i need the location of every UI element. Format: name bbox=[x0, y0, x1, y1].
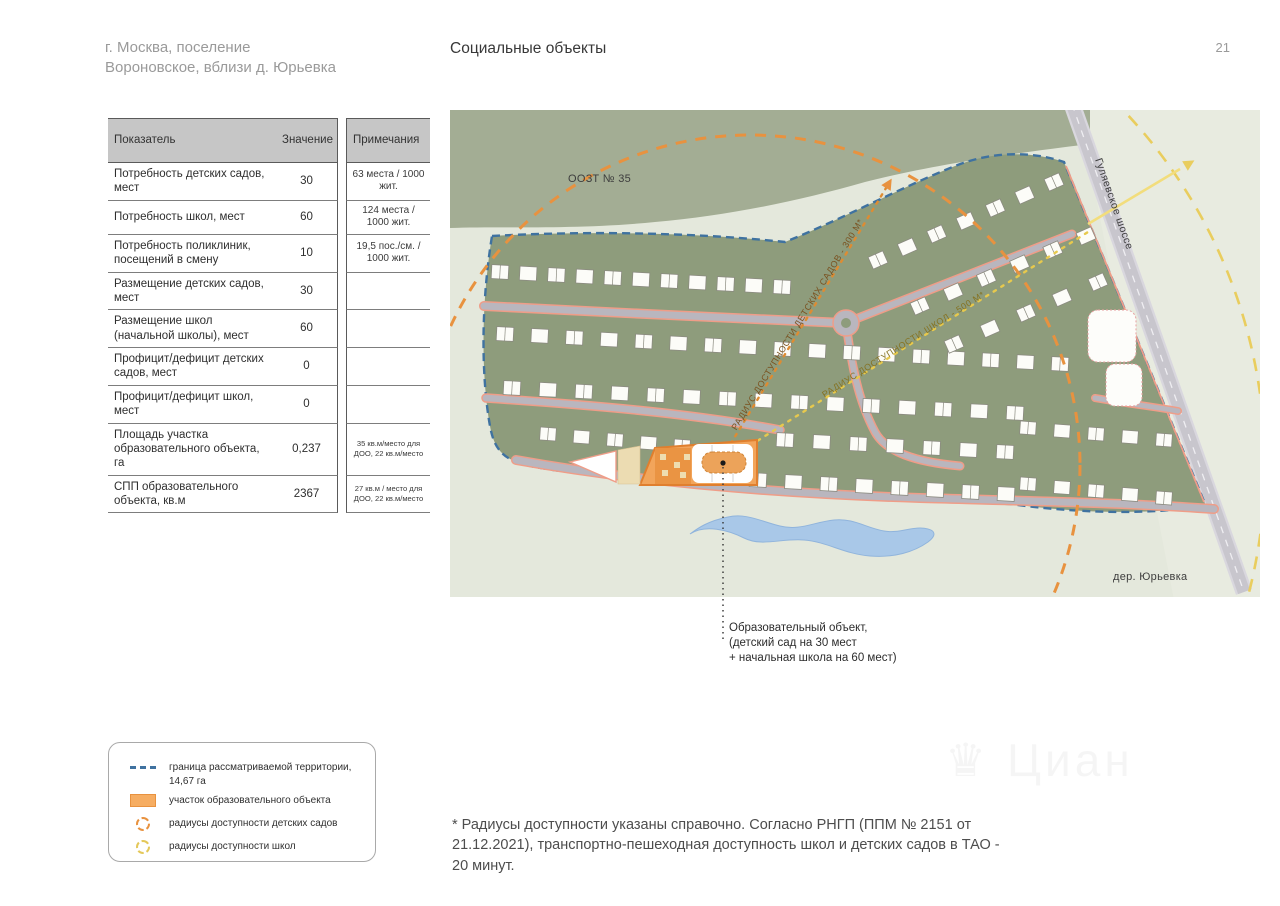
building bbox=[1020, 421, 1037, 435]
callout-line1: Образовательный объект, bbox=[729, 621, 897, 636]
table-row: Потребность поликлиник, посещений в смен… bbox=[108, 235, 276, 273]
kindergarten-radius-icon bbox=[123, 817, 163, 831]
building bbox=[982, 353, 1000, 368]
building bbox=[785, 475, 803, 490]
table-cell-note: 63 места / 1000 жит. bbox=[346, 163, 430, 201]
building bbox=[548, 268, 566, 283]
legend-item-school-radius: радиусы доступности школ bbox=[109, 840, 296, 854]
building bbox=[491, 265, 509, 280]
building bbox=[886, 439, 904, 454]
page-title: Социальные объекты bbox=[450, 40, 606, 58]
building bbox=[689, 275, 707, 290]
table-gap bbox=[338, 163, 346, 201]
legend-item-kindergarten-radius: радиусы доступности детских садов bbox=[109, 817, 337, 831]
building bbox=[791, 395, 809, 410]
building bbox=[923, 441, 941, 456]
legend-kindergarten-label: радиусы доступности детских садов bbox=[169, 817, 337, 831]
table-row: Размещение школ (начальной школы), мест bbox=[108, 310, 276, 348]
building bbox=[539, 382, 557, 397]
table-gap bbox=[338, 235, 346, 273]
table-gap bbox=[338, 424, 346, 476]
table-cell-value: 0 bbox=[276, 386, 338, 424]
table-row: Профицит/дефицит школ, мест bbox=[108, 386, 276, 424]
callout-line3: + начальная школа на 60 мест) bbox=[729, 651, 897, 666]
building bbox=[503, 381, 521, 396]
building bbox=[647, 388, 665, 403]
building bbox=[719, 391, 737, 406]
building bbox=[1088, 484, 1105, 498]
table-cell-value: 0,237 bbox=[276, 424, 338, 476]
table-cell-note bbox=[346, 348, 430, 386]
building bbox=[1156, 491, 1173, 505]
building bbox=[745, 278, 763, 293]
legend-item-boundary: граница рассматриваемой территории, 14,6… bbox=[109, 761, 351, 788]
map-legend: граница рассматриваемой территории, 14,6… bbox=[108, 742, 376, 862]
building bbox=[776, 433, 794, 448]
building bbox=[898, 400, 916, 415]
building bbox=[926, 483, 944, 498]
building bbox=[607, 433, 624, 447]
building bbox=[970, 404, 988, 419]
building bbox=[670, 336, 688, 351]
table-cell-value: 30 bbox=[276, 163, 338, 201]
building bbox=[683, 389, 701, 404]
building bbox=[1156, 433, 1173, 447]
legend-parcel-label: участок образовательного объекта bbox=[169, 794, 331, 808]
table-cell-note bbox=[346, 310, 430, 348]
table-cell-value: 60 bbox=[276, 201, 338, 235]
callout-line2: (детский сад на 30 мест bbox=[729, 636, 897, 651]
table-gap bbox=[338, 273, 346, 311]
legend-school-label: радиусы доступности школ bbox=[169, 840, 296, 854]
building bbox=[1054, 480, 1071, 494]
table-cell-note bbox=[346, 273, 430, 311]
table-row: Профицит/дефицит детских садов, мест bbox=[108, 348, 276, 386]
village-label: дер. Юрьевка bbox=[1113, 571, 1188, 583]
boundary-dash-icon bbox=[123, 761, 163, 769]
building bbox=[808, 343, 826, 358]
building bbox=[959, 443, 977, 458]
table-header-notes: Примечания bbox=[346, 118, 430, 163]
building bbox=[1122, 430, 1139, 444]
table-cell-value: 2367 bbox=[276, 476, 338, 514]
building bbox=[962, 485, 980, 500]
table-cell-note bbox=[346, 386, 430, 424]
building bbox=[912, 349, 930, 364]
table-cell-note: 35 кв.м/место для ДОО, 22 кв.м/место bbox=[346, 424, 430, 476]
building bbox=[996, 445, 1014, 460]
table-cell-value: 30 bbox=[276, 273, 338, 311]
legend-boundary-area: 14,67 га bbox=[169, 776, 206, 787]
building bbox=[843, 345, 861, 360]
table-cell-note: 27 кв.м / место для ДОО, 22 кв.м/место bbox=[346, 476, 430, 514]
building bbox=[635, 334, 653, 349]
building bbox=[997, 487, 1015, 502]
protected-area-label: ООЗТ № 35 bbox=[568, 173, 631, 185]
table-cell-value: 10 bbox=[276, 235, 338, 273]
table-cell-value: 0 bbox=[276, 348, 338, 386]
table-row: Потребность школ, мест bbox=[108, 201, 276, 235]
building bbox=[566, 330, 584, 345]
table-row: Потребность детских садов, мест bbox=[108, 163, 276, 201]
building bbox=[540, 427, 557, 441]
table-header-indicator: Показатель bbox=[108, 118, 276, 163]
building bbox=[862, 398, 880, 413]
page: г. Москва, поселение Вороновское, вблизи… bbox=[0, 0, 1280, 906]
building bbox=[773, 280, 791, 295]
parcel-swatch-icon bbox=[123, 794, 163, 807]
header-location-line1: г. Москва, поселение bbox=[105, 38, 336, 58]
building bbox=[519, 266, 537, 281]
legend-boundary-label: граница рассматриваемой территории, bbox=[169, 762, 351, 773]
site-plan-map: ООЗТ № 35 дер. Юрьевка Гуляевское шоссе … bbox=[450, 110, 1260, 685]
school-radius-icon bbox=[123, 840, 163, 854]
education-object-callout: Образовательный объект, (детский сад на … bbox=[729, 621, 897, 666]
table-cell-note: 124 места / 1000 жит. bbox=[346, 201, 430, 235]
building bbox=[660, 274, 678, 289]
parcel-center-dot bbox=[720, 460, 725, 465]
building bbox=[575, 384, 593, 399]
watermark: ♛ Циан bbox=[945, 733, 1134, 787]
building bbox=[1122, 487, 1139, 501]
building bbox=[1088, 427, 1105, 441]
building bbox=[934, 402, 952, 417]
header-location: г. Москва, поселение Вороновское, вблизи… bbox=[105, 38, 336, 79]
building bbox=[1020, 477, 1037, 491]
building bbox=[604, 271, 622, 286]
building bbox=[1006, 406, 1024, 421]
building bbox=[739, 340, 757, 355]
building bbox=[573, 430, 590, 444]
footnote: * Радиусы доступности указаны справочно.… bbox=[452, 815, 1004, 876]
building bbox=[531, 328, 549, 343]
building bbox=[855, 479, 873, 494]
building bbox=[632, 272, 650, 287]
building bbox=[611, 386, 629, 401]
building bbox=[717, 277, 735, 292]
table-cell-value: 60 bbox=[276, 310, 338, 348]
building bbox=[849, 437, 867, 452]
table-gap bbox=[338, 310, 346, 348]
table-header-value: Значение bbox=[276, 118, 338, 163]
table-header-gap bbox=[338, 118, 346, 163]
map-svg: ООЗТ № 35 дер. Юрьевка Гуляевское шоссе … bbox=[450, 110, 1260, 685]
building bbox=[600, 332, 618, 347]
table-row: Площадь участка образовательного объекта… bbox=[108, 424, 276, 476]
building bbox=[813, 435, 831, 450]
building bbox=[576, 269, 594, 284]
indicators-table: Показатель Значение Примечания Потребнос… bbox=[108, 118, 430, 513]
header-location-line2: Вороновское, вблизи д. Юрьевка bbox=[105, 58, 336, 78]
building bbox=[891, 481, 909, 496]
table-row: СПП образовательного объекта, кв.м bbox=[108, 476, 276, 514]
table-cell-note: 19,5 пос./см. / 1000 жит. bbox=[346, 235, 430, 273]
building bbox=[1051, 357, 1069, 372]
building bbox=[827, 397, 845, 412]
table-gap bbox=[338, 476, 346, 514]
table-gap bbox=[338, 348, 346, 386]
table-gap bbox=[338, 201, 346, 235]
table-gap bbox=[338, 386, 346, 424]
building bbox=[704, 338, 722, 353]
legend-item-parcel: участок образовательного объекта bbox=[109, 794, 331, 808]
building bbox=[1054, 424, 1071, 438]
building bbox=[1016, 355, 1034, 370]
table-row: Размещение детских садов, мест bbox=[108, 273, 276, 311]
building bbox=[496, 327, 514, 342]
building bbox=[820, 477, 838, 492]
page-number: 21 bbox=[1216, 40, 1230, 55]
